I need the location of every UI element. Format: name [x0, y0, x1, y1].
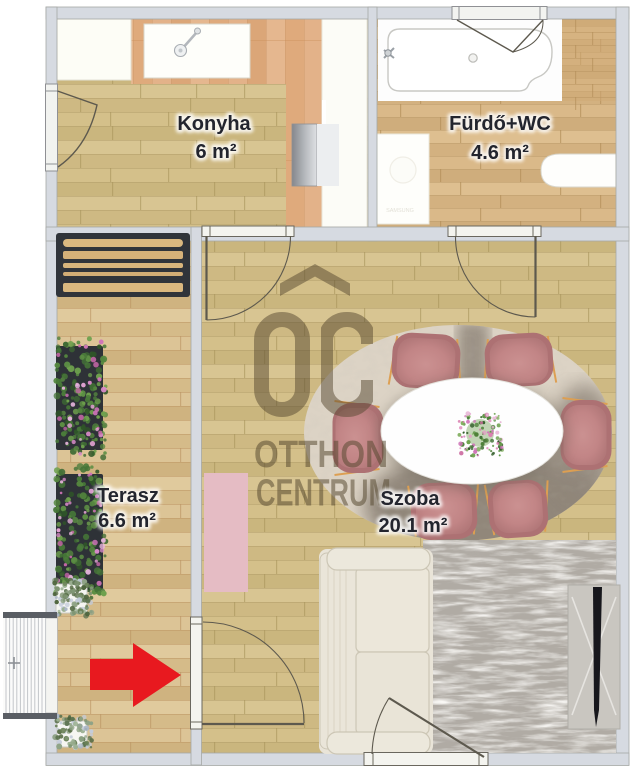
svg-text:SAMSUNG: SAMSUNG	[386, 208, 414, 214]
svg-text:OTTHON: OTTHON	[254, 434, 388, 476]
svg-text:6.6 m²: 6.6 m²	[98, 510, 156, 532]
svg-text:Konyha: Konyha	[177, 113, 251, 135]
svg-text:Terasz: Terasz	[97, 485, 159, 507]
svg-text:Szoba: Szoba	[381, 488, 441, 510]
svg-text:4.6 m²: 4.6 m²	[471, 142, 529, 164]
svg-text:Fürdő+WC: Fürdő+WC	[449, 113, 551, 135]
svg-text:CENTRUM: CENTRUM	[256, 473, 391, 515]
svg-text:6 m²: 6 m²	[195, 141, 236, 163]
svg-text:20.1 m²: 20.1 m²	[379, 515, 448, 537]
